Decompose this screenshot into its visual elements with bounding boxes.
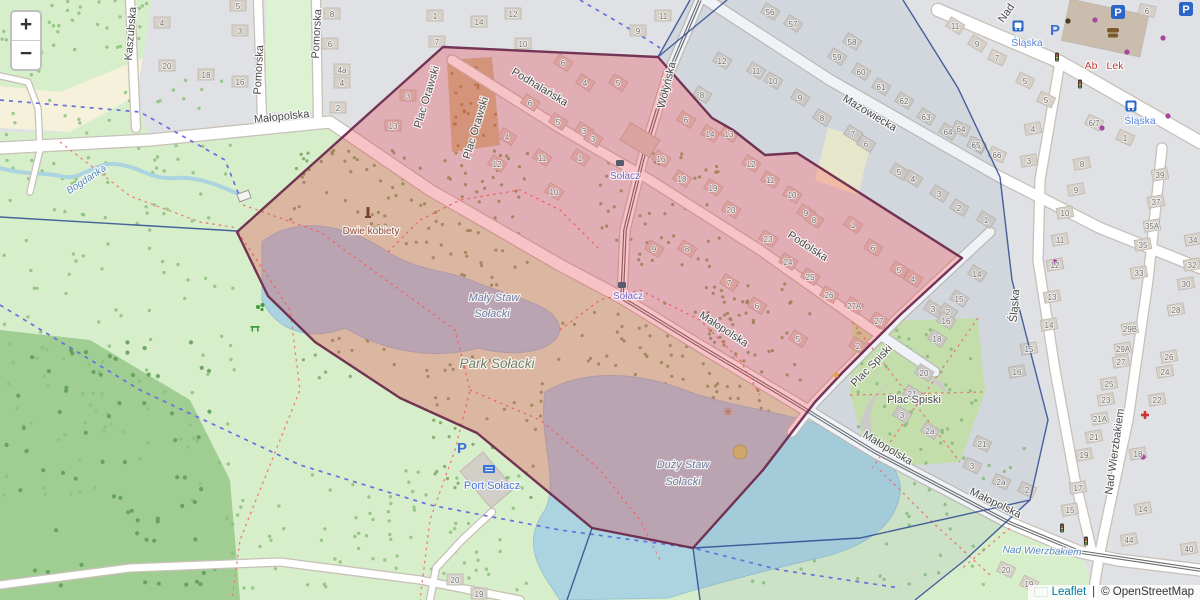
tree-dot (162, 271, 165, 274)
tree-dot (229, 358, 232, 361)
tree-dot (81, 392, 84, 395)
tree-dot (130, 509, 134, 513)
tree-dot (424, 493, 427, 496)
house-number: 30 (1182, 280, 1191, 289)
playground-icon (261, 303, 265, 307)
tree-dot (520, 486, 523, 489)
house-number: 23 (1102, 396, 1111, 405)
house-number: 13 (389, 122, 398, 131)
zoom-control: + − (10, 10, 42, 71)
tree-dot (24, 449, 28, 453)
house-number: 9 (804, 209, 809, 218)
tree-dot (29, 269, 32, 272)
place-label-poi-red: Ab (1085, 60, 1098, 72)
tree-dot (148, 247, 151, 250)
traffic-signal-icon (1079, 86, 1081, 88)
tree-dot (475, 550, 478, 553)
tree-dot (357, 532, 360, 535)
tree-dot (46, 570, 50, 574)
tree-dot (30, 159, 33, 162)
tree-dot (224, 172, 227, 175)
place-label-pond: Mały Staw (469, 292, 521, 304)
house-number: 9 (652, 245, 657, 254)
tree-dot (16, 394, 20, 398)
tree-dot (64, 386, 68, 390)
house-number: 35 (1139, 241, 1148, 250)
tree-dot (138, 25, 141, 28)
tree-dot (443, 465, 446, 468)
tree-dot (5, 159, 8, 162)
tree-dot (242, 586, 245, 589)
tree-dot (138, 457, 141, 460)
tree-dot (456, 482, 459, 485)
tree-dot (89, 403, 92, 406)
tree-dot (227, 462, 230, 465)
house-number: 3 (591, 135, 596, 144)
tree-dot (146, 211, 149, 214)
house-number: 10 (519, 40, 528, 49)
tree-dot (388, 519, 391, 522)
house-number: 24 (784, 258, 793, 267)
tree-dot (48, 21, 51, 24)
tree-dot (94, 409, 97, 412)
tree-dot (11, 112, 14, 115)
map-viewport[interactable]: PPPP✳453201816864a4213317141210911121110… (0, 0, 1200, 600)
house-number: 12 (718, 57, 727, 66)
tree-dot (53, 208, 56, 211)
house-number: 7 (435, 38, 440, 47)
house-number: 12 (493, 160, 502, 169)
tree-dot (124, 91, 127, 94)
tree-dot (507, 476, 510, 479)
tree-dot (231, 522, 234, 525)
tree-dot (25, 239, 28, 242)
tree-dot (206, 373, 209, 376)
tree-dot (226, 422, 229, 425)
tree-dot (156, 374, 160, 378)
shop-dot-icon (833, 372, 838, 377)
tree-dot (64, 292, 67, 295)
parking-icon: P (457, 440, 467, 457)
house-number: 64 (944, 128, 953, 137)
tree-dot (448, 435, 451, 438)
bus-stop-icon (1019, 28, 1021, 30)
tree-dot (371, 518, 374, 521)
house-number: 20 (920, 369, 929, 378)
tree-dot (485, 568, 488, 571)
tree-dot (143, 580, 147, 584)
tree-dot (97, 320, 100, 323)
bus-stop-icon (1128, 103, 1135, 109)
house-number: 11 (951, 22, 960, 31)
tree-dot (78, 121, 81, 124)
tree-dot (207, 369, 211, 373)
house-number: 24 (1161, 368, 1170, 377)
tree-dot (274, 567, 277, 570)
traffic-signal-icon (1061, 528, 1063, 530)
house-number: 2 (856, 342, 861, 351)
attraction-star-icon: ✳ (723, 405, 733, 419)
place-label-busstop: Śląska (1124, 114, 1156, 127)
tree-dot (52, 44, 55, 47)
tree-dot (63, 210, 66, 213)
tree-dot (72, 252, 75, 255)
tree-dot (499, 550, 502, 553)
house-number: 12 (747, 160, 756, 169)
attribution-separator: | (1092, 586, 1095, 598)
tree-dot (118, 496, 122, 500)
house-number: 3 (900, 411, 905, 420)
house-number: 6 (1145, 7, 1150, 16)
place-label-pond: Sołacki (665, 476, 701, 488)
house-number: 5 (556, 118, 561, 127)
tree-dot (231, 287, 234, 290)
tree-dot (241, 499, 244, 502)
house-number: 9 (636, 27, 641, 36)
shop-dot-icon (1165, 113, 1170, 118)
tree-dot (148, 309, 151, 312)
tree-dot (147, 407, 150, 410)
tree-dot (145, 368, 148, 371)
ukraine-flag-icon (1034, 587, 1048, 597)
island-icon (733, 445, 747, 459)
tree-dot (47, 369, 51, 373)
tree-dot (176, 263, 179, 266)
house-number: 59 (833, 53, 842, 62)
tree-dot (74, 477, 78, 481)
tree-dot (106, 181, 109, 184)
tree-dot (201, 354, 204, 357)
tree-dot (182, 97, 185, 100)
tree-dot (183, 297, 186, 300)
traffic-signal-icon (1085, 538, 1087, 540)
tree-dot (162, 212, 165, 215)
tree-dot (105, 26, 108, 29)
house-number: 2 (946, 308, 951, 317)
tree-dot (498, 538, 501, 541)
tree-dot (15, 407, 18, 410)
house-number: 5 (616, 79, 621, 88)
house-number: 58 (848, 38, 857, 47)
house-number: 33 (1135, 269, 1144, 278)
tree-dot (236, 513, 239, 516)
tree-dot (125, 351, 129, 355)
tree-dot (197, 435, 201, 439)
house-number: 4 (1031, 125, 1036, 134)
tree-dot (982, 583, 985, 586)
traffic-signal-icon (1085, 543, 1087, 545)
house-number: 2 (336, 104, 341, 113)
tree-dot (383, 558, 386, 561)
tree-dot (47, 385, 50, 388)
tree-dot (87, 363, 90, 366)
shop-dot-icon (1099, 125, 1104, 130)
tree-dot (404, 469, 407, 472)
tree-dot (142, 401, 146, 405)
house-number: 3 (582, 127, 587, 136)
place-label-busstop: Śląska (1011, 36, 1043, 49)
tree-dot (44, 493, 47, 496)
house-number: 22 (1153, 396, 1162, 405)
picnic-icon (252, 328, 254, 332)
tree-dot (8, 343, 11, 346)
parking-icon-letter: P (1182, 4, 1189, 16)
tree-dot (367, 495, 370, 498)
tree-dot (153, 203, 156, 206)
tree-dot (455, 476, 458, 479)
tree-dot (50, 4, 53, 7)
house-number: 29A (1116, 345, 1131, 354)
place-label-pond: Duży Staw (657, 459, 711, 471)
shop-dot-icon (1160, 35, 1165, 40)
tree-dot (195, 439, 198, 442)
house-number: 37 (1152, 198, 1161, 207)
house-number: 26 (825, 291, 834, 300)
tree-dot (92, 370, 96, 374)
playground-icon (256, 305, 260, 309)
tree-dot (269, 539, 272, 542)
tree-dot (512, 507, 515, 510)
tree-dot (74, 259, 77, 262)
zoom-out-button[interactable]: − (12, 41, 40, 69)
tree-dot (354, 516, 357, 519)
house-number: 16 (942, 317, 951, 326)
house-number: 4 (911, 275, 916, 284)
house-number: 1 (984, 216, 989, 225)
tree-dot (97, 0, 100, 3)
tree-dot (186, 278, 189, 281)
tree-dot (467, 576, 470, 579)
tree-dot (442, 572, 445, 575)
house-number: 14 (1045, 321, 1054, 330)
tree-dot (156, 519, 160, 523)
house-number: 10 (550, 188, 559, 197)
tree-dot (226, 517, 229, 520)
tree-dot (64, 433, 67, 436)
tree-dot (166, 207, 169, 210)
tree-dot (100, 392, 103, 395)
tree-dot (204, 277, 207, 280)
tree-dot (439, 421, 442, 424)
house-number: 3 (931, 305, 936, 314)
house-number: 5 (897, 168, 902, 177)
tree-dot (69, 493, 72, 496)
house-number: 21 (978, 440, 987, 449)
tree-dot (229, 144, 232, 147)
tree-dot (85, 131, 88, 134)
pomorska-median (266, 0, 314, 112)
tree-dot (105, 45, 108, 48)
zoom-in-button[interactable]: + (12, 12, 40, 41)
tree-dot (66, 9, 69, 12)
tree-dot (143, 346, 147, 350)
house-number: 27 (1117, 358, 1126, 367)
house-number: 13 (725, 130, 734, 139)
tree-dot (68, 273, 71, 276)
tree-dot (79, 5, 82, 8)
tree-dot (300, 153, 303, 156)
house-number: 11 (538, 154, 547, 163)
tree-dot (365, 534, 368, 537)
tree-dot (189, 423, 192, 426)
house-number: 5 (1044, 96, 1049, 105)
tree-dot (84, 421, 87, 424)
place-label-park: Park Sołacki (459, 356, 535, 371)
tree-dot (407, 481, 410, 484)
house-number: 66 (993, 151, 1002, 160)
traffic-signal-icon (1056, 57, 1058, 59)
house-number: 32 (1188, 261, 1197, 270)
house-number: 20 (727, 206, 736, 215)
house-number: 19 (709, 184, 718, 193)
tree-dot (152, 539, 156, 543)
tree-dot (145, 2, 148, 5)
map-canvas[interactable]: PPPP✳453201816864a4213317141210911121110… (0, 0, 1200, 600)
house-number: 4 (911, 175, 916, 184)
tree-dot (119, 314, 122, 317)
tree-dot (5, 443, 9, 447)
tree-dot (11, 361, 14, 364)
traffic-signal-icon (1061, 530, 1063, 532)
tree-dot (174, 144, 177, 147)
tree-dot (35, 287, 38, 290)
tree-dot (96, 23, 99, 26)
traffic-signal-icon (1085, 541, 1087, 543)
tree-dot (163, 169, 166, 172)
house-number: 9 (1074, 186, 1079, 195)
tree-dot (175, 475, 179, 479)
tree-dot (125, 340, 129, 344)
tree-dot (220, 335, 223, 338)
house-number: 14 (1139, 505, 1148, 514)
tree-dot (409, 536, 412, 539)
medical-cross-icon (1144, 411, 1147, 419)
tree-dot (87, 156, 90, 159)
tree-dot (118, 15, 121, 18)
shop-dot-icon (1092, 17, 1097, 22)
tree-dot (432, 419, 435, 422)
tree-dot (389, 495, 392, 498)
tree-dot (116, 46, 119, 49)
monument-icon (365, 216, 371, 218)
tree-dot (57, 24, 60, 27)
tree-dot (434, 472, 437, 475)
tree-dot (186, 445, 189, 448)
tree-dot (324, 585, 327, 588)
tree-dot (108, 354, 112, 358)
tree-dot (305, 159, 308, 162)
tree-dot (233, 368, 236, 371)
tree-dot (471, 443, 474, 446)
tree-dot (144, 205, 147, 208)
house-number: 3 (1027, 157, 1032, 166)
tree-dot (195, 580, 199, 584)
tree-dot (268, 535, 271, 538)
tram-stop-icon (616, 160, 624, 166)
traffic-signal-icon (1061, 525, 1063, 527)
tree-dot (141, 4, 144, 7)
tree-dot (306, 583, 309, 586)
house-number: 19 (475, 590, 484, 599)
house-number: 3 (406, 92, 411, 101)
house-number: 60 (857, 68, 866, 77)
tree-dot (93, 486, 96, 489)
house-number: 29B (1123, 325, 1137, 334)
tree-dot (197, 107, 200, 110)
house-number: 15 (1066, 506, 1075, 515)
house-number: 26 (1165, 353, 1174, 362)
tree-dot (368, 512, 371, 515)
house-number: 6/7 (1088, 119, 1100, 128)
house-number: 6 (864, 140, 869, 149)
tree-dot (106, 242, 109, 245)
house-number: 57 (789, 20, 798, 29)
tree-dot (323, 527, 326, 530)
tree-dot (395, 554, 398, 557)
tree-dot (146, 441, 149, 444)
house-number: 5 (1023, 77, 1028, 86)
house-number: 14 (973, 270, 982, 279)
tree-dot (388, 533, 391, 536)
house-number: 10 (769, 77, 778, 86)
place-label-station: Sołacz (610, 171, 640, 182)
tree-dot (108, 344, 111, 347)
monument-icon (367, 207, 370, 216)
tree-dot (412, 506, 415, 509)
tree-dot (102, 430, 105, 433)
tree-dot (324, 371, 327, 374)
tree-dot (82, 254, 85, 257)
tree-dot (33, 568, 37, 572)
tree-dot (454, 522, 457, 525)
tree-dot (311, 473, 314, 476)
tree-dot (184, 583, 188, 587)
house-number: 20 (451, 576, 460, 585)
traffic-signal-icon (1079, 81, 1081, 83)
tree-dot (193, 537, 197, 541)
tree-dot (145, 538, 149, 542)
tree-dot (320, 539, 323, 542)
house-number: 3 (238, 27, 243, 36)
tree-dot (395, 567, 398, 570)
tree-dot (104, 216, 107, 219)
house-number: 4 (340, 79, 345, 88)
tree-dot (463, 561, 466, 564)
house-number: 18 (202, 71, 211, 80)
house-number: 1 (851, 221, 856, 230)
picnic-icon (257, 328, 259, 332)
tree-dot (517, 474, 520, 477)
tree-dot (61, 471, 65, 475)
leaflet-link[interactable]: Leaflet (1052, 586, 1087, 598)
tree-dot (123, 460, 127, 464)
tree-dot (2, 30, 5, 33)
tree-dot (173, 438, 177, 442)
tree-dot (126, 510, 130, 514)
house-number: 20 (1002, 566, 1011, 575)
house-number: 6 (871, 244, 876, 253)
tree-dot (30, 355, 34, 359)
house-number: 1 (433, 12, 438, 21)
house-number: 3 (970, 462, 975, 471)
tree-dot (453, 527, 456, 530)
house-number: 16 (236, 78, 245, 87)
tree-dot (147, 373, 151, 377)
tree-dot (413, 508, 416, 511)
house-number: 7 (995, 54, 1000, 63)
tree-dot (449, 531, 452, 534)
bus-stop-icon (1128, 108, 1130, 110)
